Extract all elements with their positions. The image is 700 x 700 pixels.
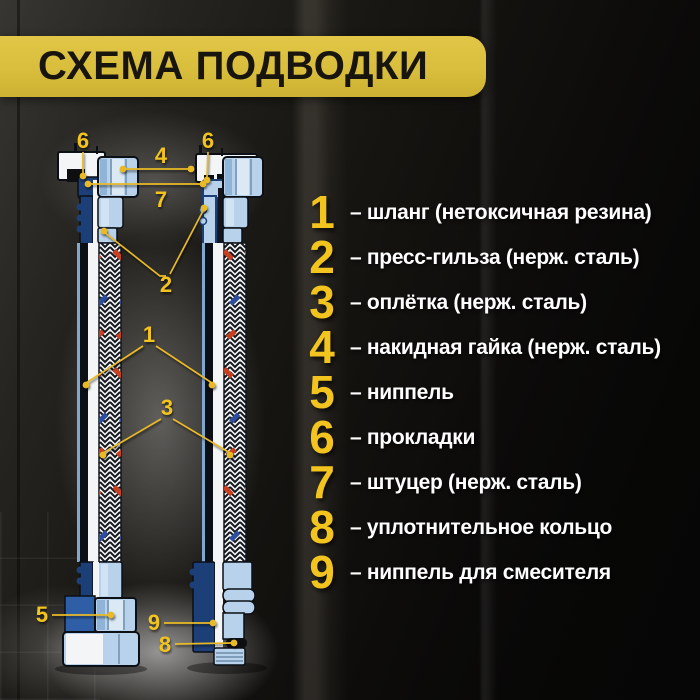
legend-label: – пресс-гильза (нерж. сталь) [350,246,639,270]
legend: 1 – шланг (нетоксичная резина) 2 – пресс… [303,190,695,595]
legend-item-9: 9 – ниппель для смесителя [303,550,695,595]
legend-item-1: 1 – шланг (нетоксичная резина) [303,190,695,235]
callout-7: 7 [155,187,167,212]
legend-label: – оплётка (нерж. сталь) [350,291,587,315]
callout-3: 3 [161,395,173,420]
legend-number: 6 [303,415,341,460]
page-title: СХЕМА ПОДВОДКИ [0,36,486,97]
legend-number: 7 [303,460,341,505]
callout-6-right: 6 [202,128,214,153]
hose-diagram: 6 6 4 7 2 1 [0,120,310,700]
legend-label: – ниппель для смесителя [350,561,611,585]
legend-label: – шланг (нетоксичная резина) [350,201,652,225]
legend-number: 8 [303,505,341,550]
title-banner: СХЕМА ПОДВОДКИ [0,36,486,97]
legend-number: 1 [303,190,341,235]
legend-label: – уплотнительное кольцо [350,516,612,540]
callout-5: 5 [36,602,48,627]
legend-label: – прокладки [350,426,475,450]
legend-item-4: 4 – накидная гайка (нерж. сталь) [303,325,695,370]
legend-label: – накидная гайка (нерж. сталь) [350,336,661,360]
legend-item-5: 5 – ниппель [303,370,695,415]
legend-item-7: 7 – штуцер (нерж. сталь) [303,460,695,505]
infographic-root: СХЕМА ПОДВОДКИ [0,0,700,700]
callout-6-left: 6 [77,128,89,153]
hose-left [55,143,147,675]
legend-label: – ниппель [350,381,454,405]
legend-item-2: 2 – пресс-гильза (нерж. сталь) [303,235,695,280]
cap-nut-right [223,157,263,197]
legend-item-3: 3 – оплётка (нерж. сталь) [303,280,695,325]
legend-label: – штуцер (нерж. сталь) [350,471,582,495]
callout-8: 8 [159,632,171,657]
legend-item-8: 8 – уплотнительное кольцо [303,505,695,550]
callout-1: 1 [143,322,155,347]
cap-nut-left [98,157,138,197]
legend-number: 5 [303,370,341,415]
legend-item-6: 6 – прокладки [303,415,695,460]
hose-right [187,145,267,674]
legend-number: 2 [303,235,341,280]
legend-number: 4 [303,325,341,370]
legend-number: 3 [303,280,341,325]
callout-4: 4 [155,143,168,168]
legend-number: 9 [303,550,341,595]
